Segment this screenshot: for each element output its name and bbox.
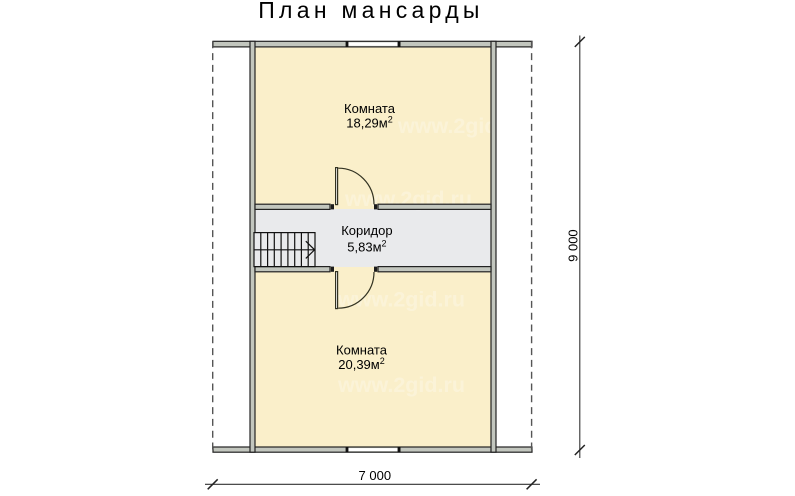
svg-text:5,83м2: 5,83м2 (347, 239, 386, 255)
svg-text:Коридор: Коридор (341, 223, 392, 238)
svg-text:www.2gid.ru: www.2gid.ru (337, 288, 465, 312)
svg-text:7 000: 7 000 (359, 468, 392, 483)
svg-text:9 000: 9 000 (566, 229, 581, 262)
svg-text:www.2gid.ru: www.2gid.ru (337, 373, 465, 397)
svg-text:20,39м2: 20,39м2 (338, 356, 385, 372)
svg-text:18,29м2: 18,29м2 (346, 114, 393, 130)
svg-text:План мансарды: План мансарды (258, 0, 484, 23)
svg-text:www.2gid.ru: www.2gid.ru (397, 114, 525, 138)
